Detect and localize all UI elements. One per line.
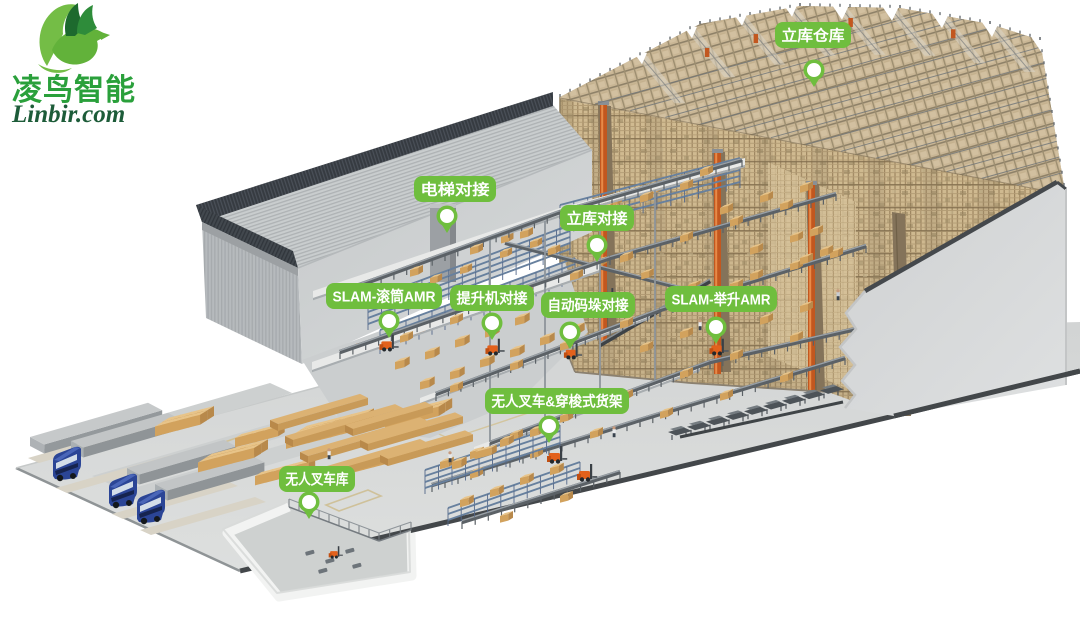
svg-text:无人叉车库: 无人叉车库 bbox=[286, 471, 349, 489]
svg-text:电梯对接: 电梯对接 bbox=[421, 181, 490, 199]
svg-text:无人叉车&穿梭式货架: 无人叉车&穿梭式货架 bbox=[492, 393, 623, 411]
svg-text:自动码垛对接: 自动码垛对接 bbox=[548, 297, 629, 315]
svg-text:SLAM-举升AMR: SLAM-举升AMR bbox=[672, 291, 771, 309]
svg-text:提升机对接: 提升机对接 bbox=[457, 290, 528, 308]
svg-text:SLAM-滚筒AMR: SLAM-滚筒AMR bbox=[333, 288, 436, 306]
svg-text:Linbir.com: Linbir.com bbox=[11, 101, 125, 128]
svg-text:立库仓库: 立库仓库 bbox=[782, 27, 845, 45]
svg-text:立库对接: 立库对接 bbox=[567, 210, 628, 228]
